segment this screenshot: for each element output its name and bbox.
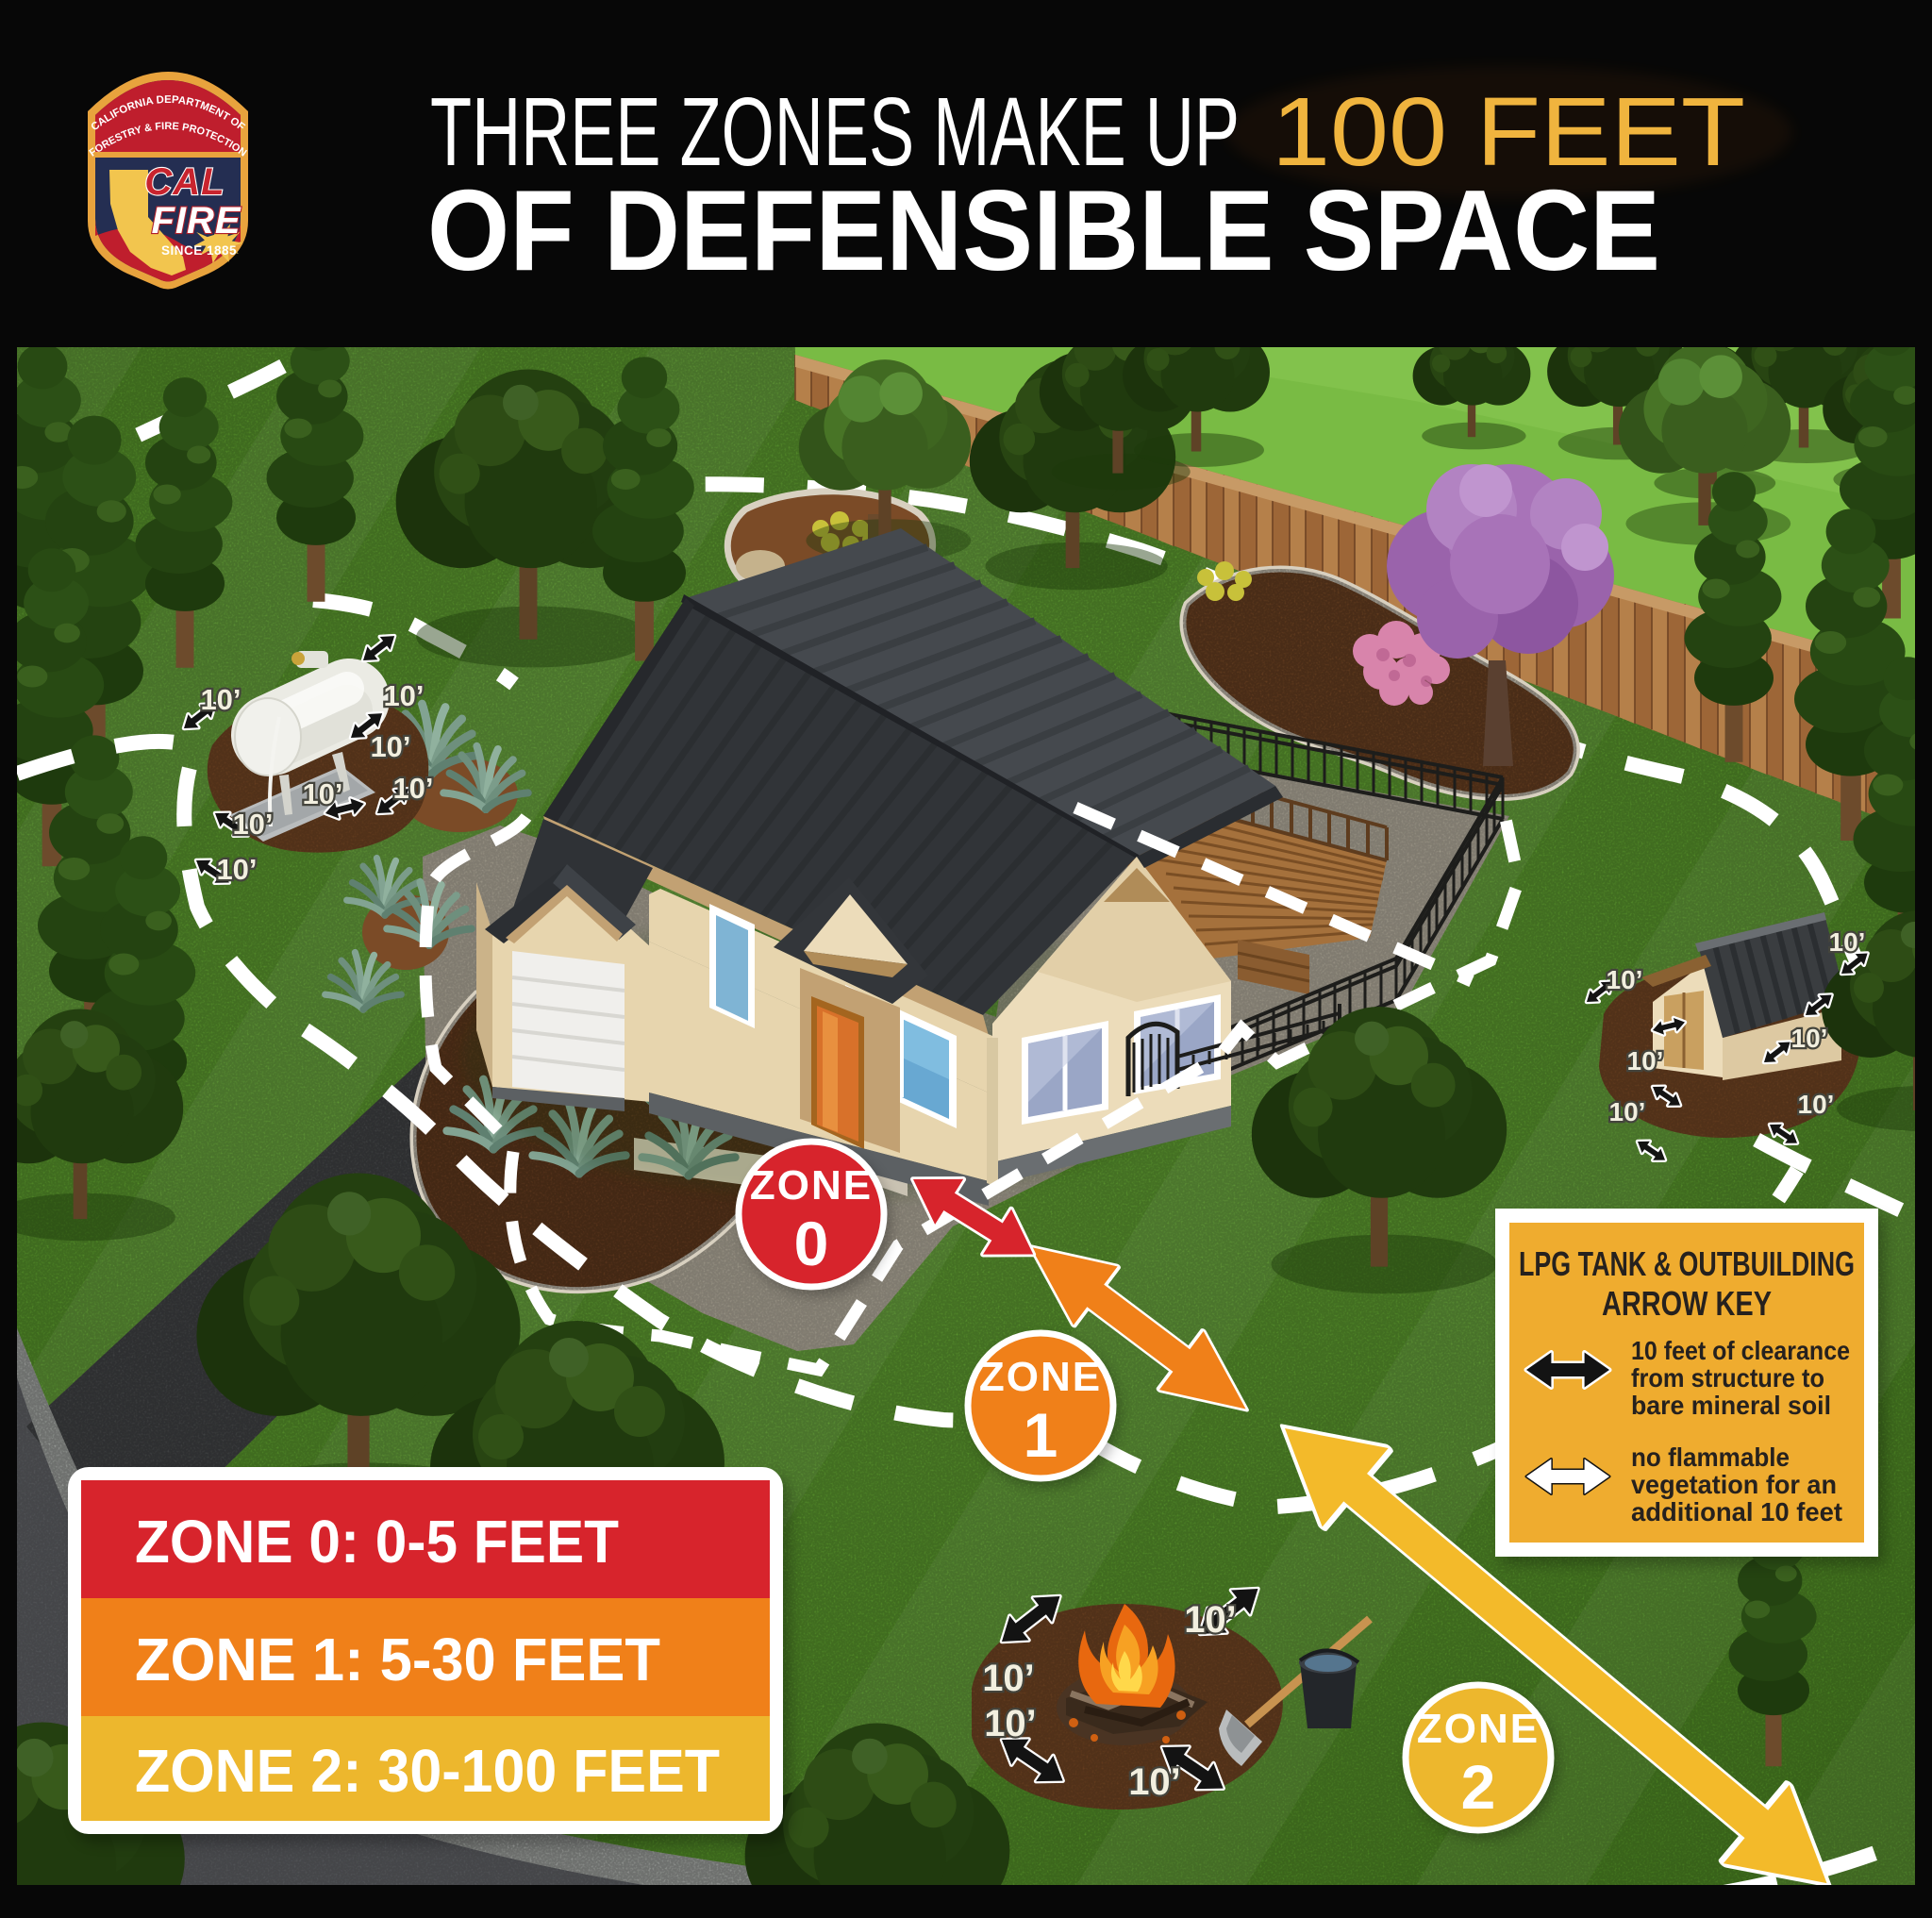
svg-text:10’: 10’ <box>1607 965 1643 994</box>
svg-text:ZONE: ZONE <box>1417 1706 1540 1752</box>
svg-text:10’: 10’ <box>1184 1599 1237 1641</box>
svg-text:10 feet of clearance: 10 feet of clearance <box>1631 1336 1850 1365</box>
svg-text:10’: 10’ <box>1798 1090 1835 1119</box>
svg-text:additional 10 feet: additional 10 feet <box>1631 1497 1842 1526</box>
svg-text:10’: 10’ <box>383 679 424 712</box>
svg-text:10’: 10’ <box>200 683 241 716</box>
svg-text:vegetation for an: vegetation for an <box>1631 1470 1837 1499</box>
svg-text:10’: 10’ <box>232 808 273 841</box>
svg-text:10’: 10’ <box>1791 1024 1828 1053</box>
svg-text:10’: 10’ <box>1128 1761 1181 1803</box>
svg-text:10’: 10’ <box>982 1658 1035 1699</box>
svg-text:no flammable: no flammable <box>1631 1443 1790 1472</box>
svg-text:10’: 10’ <box>392 772 433 805</box>
svg-text:bare mineral soil: bare mineral soil <box>1631 1391 1831 1420</box>
svg-text:OF DEFENSIBLE SPACE: OF DEFENSIBLE SPACE <box>427 166 1660 294</box>
svg-text:10’: 10’ <box>370 730 410 763</box>
svg-text:1: 1 <box>1024 1400 1058 1470</box>
svg-text:10’: 10’ <box>216 853 257 886</box>
svg-text:10’: 10’ <box>302 777 342 810</box>
svg-text:LPG TANK & OUTBUILDING: LPG TANK & OUTBUILDING <box>1519 1244 1855 1283</box>
svg-text:ZONE: ZONE <box>750 1162 873 1209</box>
svg-text:ZONE 0: 0-5 FEET: ZONE 0: 0-5 FEET <box>135 1508 619 1576</box>
svg-text:ZONE 2: 30-100 FEET: ZONE 2: 30-100 FEET <box>135 1737 720 1805</box>
svg-text:FIRE: FIRE <box>151 200 241 242</box>
svg-text:10’: 10’ <box>1829 927 1866 957</box>
svg-text:SINCE 1885: SINCE 1885 <box>161 243 237 258</box>
svg-text:ZONE 1: 5-30 FEET: ZONE 1: 5-30 FEET <box>135 1626 660 1693</box>
svg-text:ZONE: ZONE <box>979 1354 1102 1400</box>
svg-text:from structure to: from structure to <box>1631 1363 1824 1393</box>
svg-text:0: 0 <box>794 1209 829 1278</box>
svg-text:CAL: CAL <box>144 161 225 203</box>
svg-text:10’: 10’ <box>1609 1097 1646 1126</box>
svg-text:10’: 10’ <box>1627 1046 1664 1076</box>
svg-text:2: 2 <box>1461 1752 1496 1822</box>
svg-text:ARROW KEY: ARROW KEY <box>1602 1284 1772 1323</box>
svg-text:10’: 10’ <box>984 1703 1037 1744</box>
